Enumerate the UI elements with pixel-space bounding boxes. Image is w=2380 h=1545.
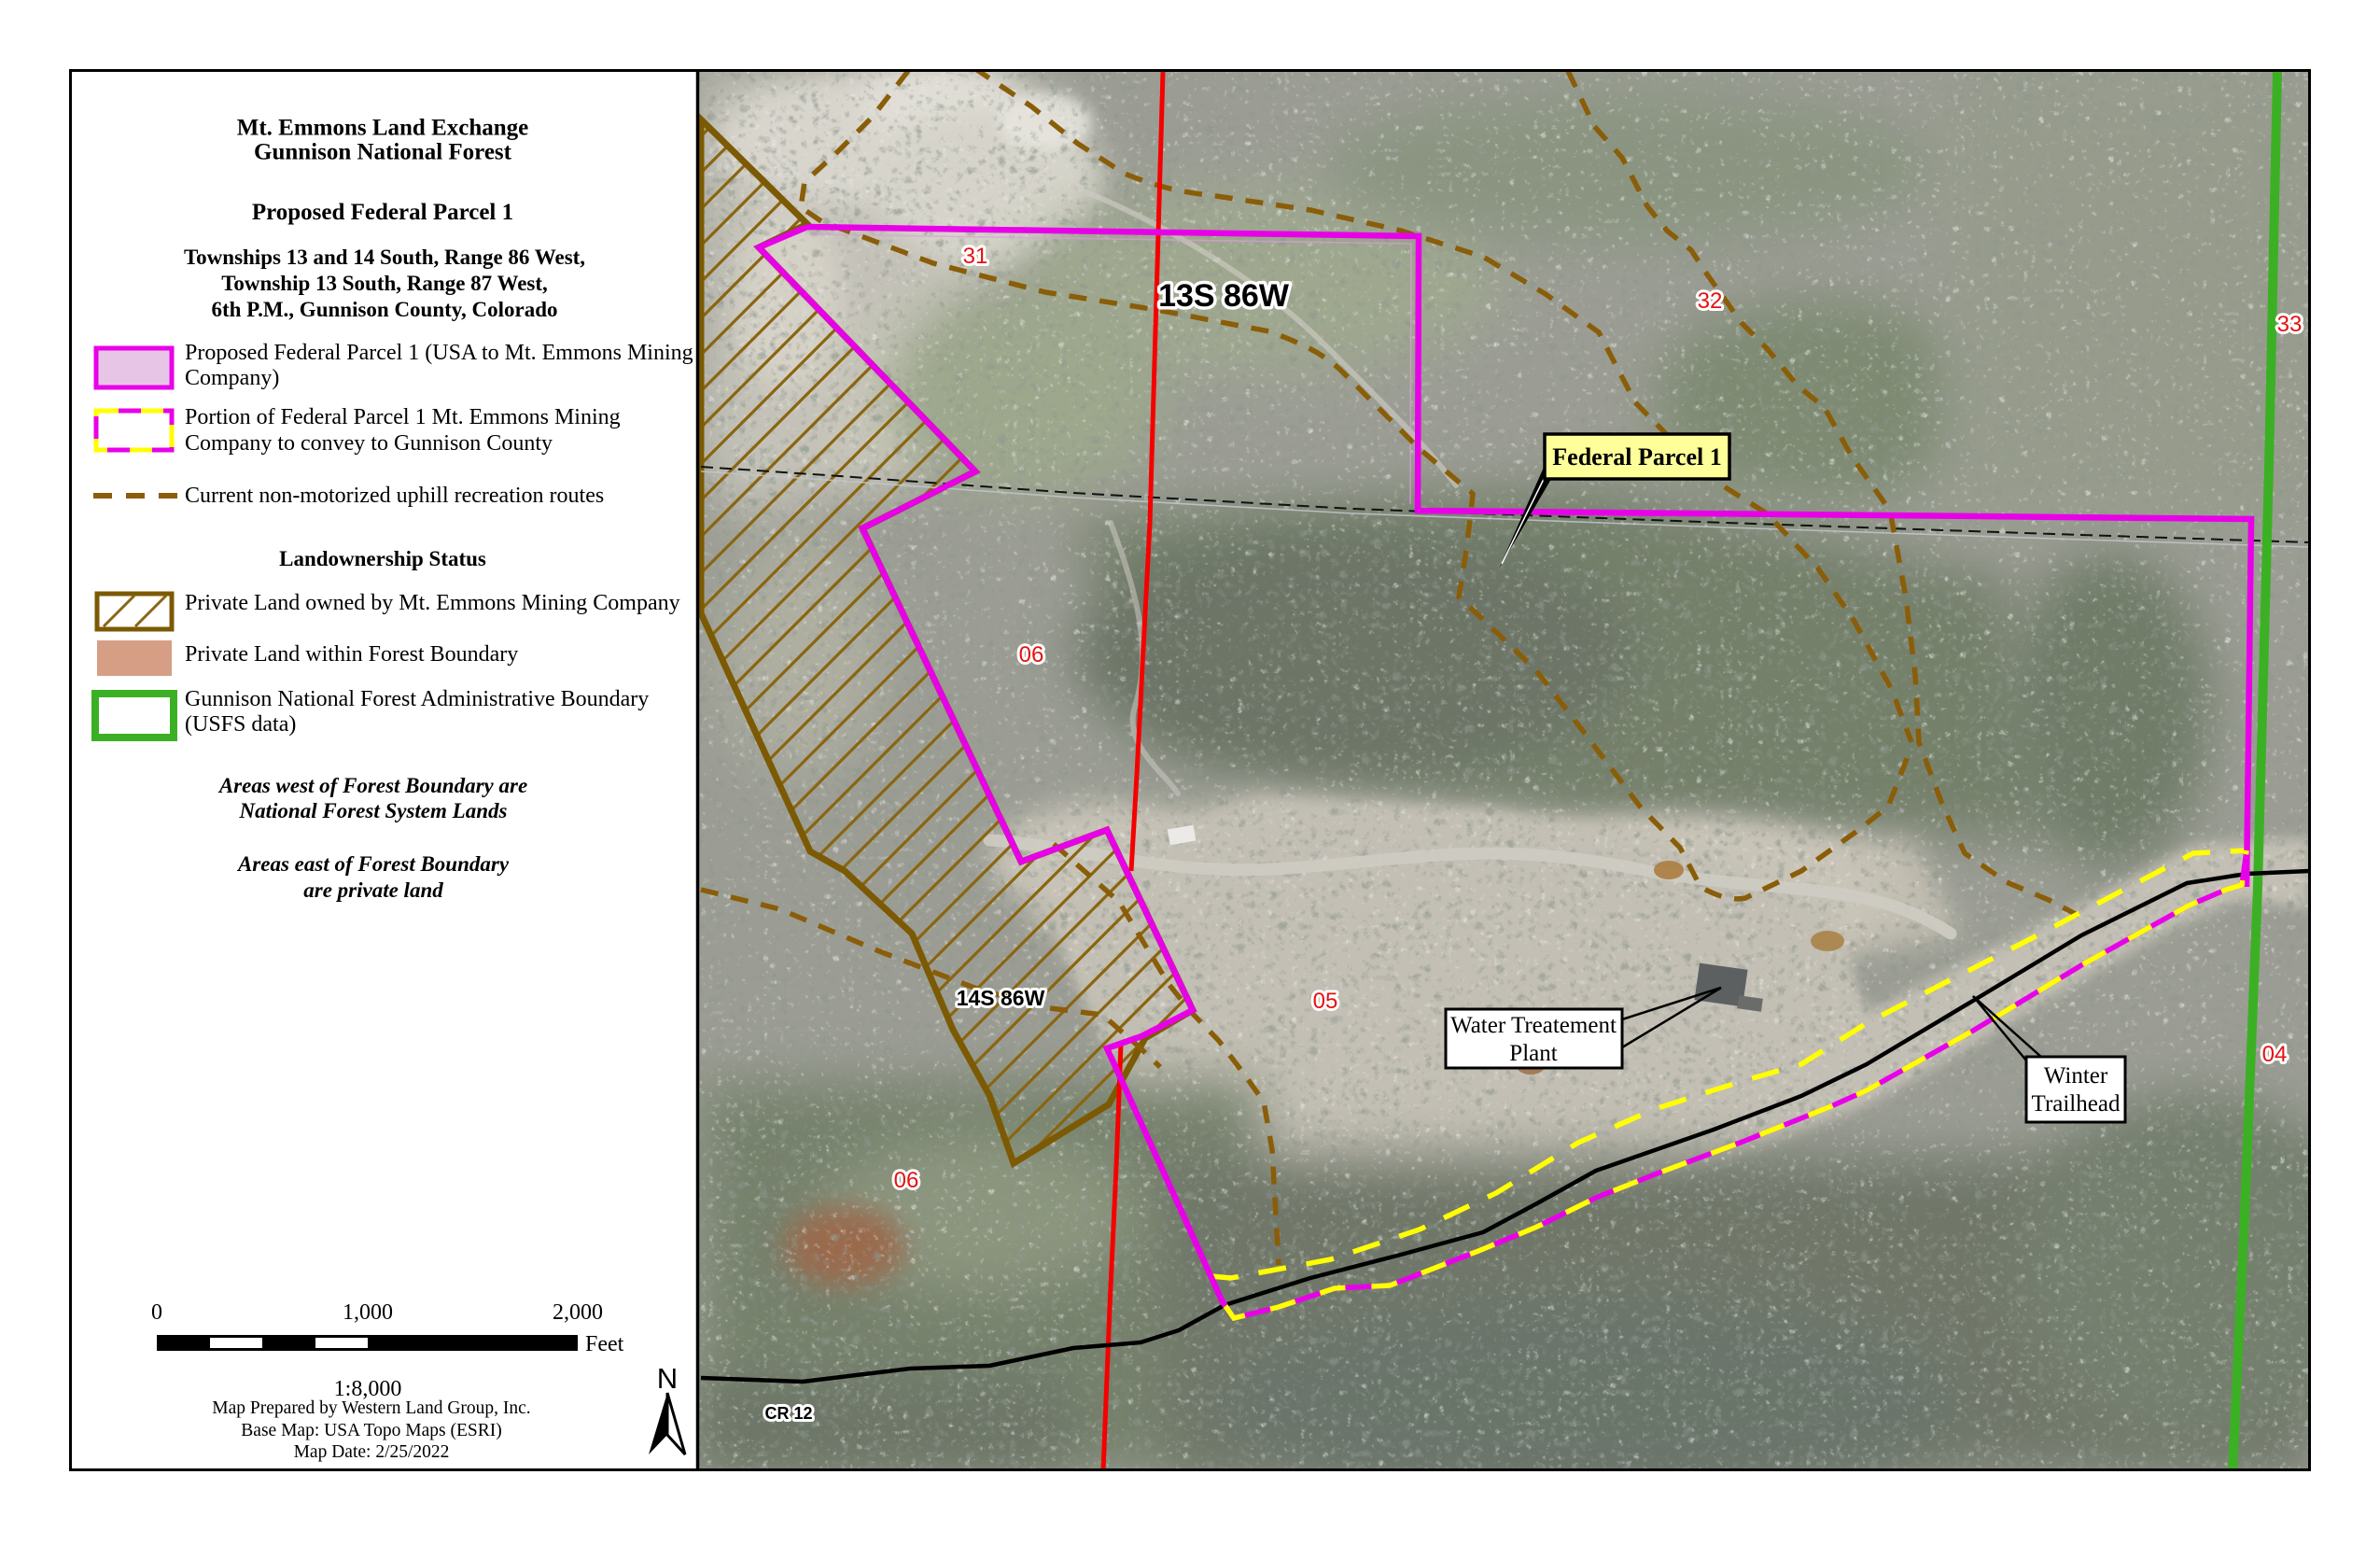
svg-text:31: 31 [963, 244, 988, 269]
svg-text:1,000: 1,000 [343, 1300, 393, 1325]
svg-text:04: 04 [2262, 1042, 2288, 1067]
svg-text:2,000: 2,000 [553, 1300, 603, 1325]
svg-text:(USFS data): (USFS data) [185, 712, 296, 737]
svg-text:0: 0 [151, 1300, 162, 1325]
svg-text:14S 86W: 14S 86W [957, 986, 1045, 1010]
svg-text:Portion of Federal Parcel 1 Mt: Portion of Federal Parcel 1 Mt. Emmons M… [185, 405, 621, 429]
svg-text:Plant: Plant [1509, 1041, 1557, 1066]
svg-text:Gunnison National Forest Admin: Gunnison National Forest Administrative … [185, 687, 649, 711]
svg-text:06: 06 [1019, 642, 1044, 667]
svg-text:Map Date: 2/25/2022: Map Date: 2/25/2022 [294, 1442, 450, 1462]
svg-text:Private Land within Forest Bou: Private Land within Forest Boundary [185, 642, 518, 667]
svg-text:Areas east of Forest Boundary: Areas east of Forest Boundary [236, 852, 510, 876]
svg-text:CR 12: CR 12 [764, 1404, 812, 1423]
svg-text:are private land: are private land [303, 878, 443, 902]
svg-text:Base Map: USA Topo Maps (ESRI): Base Map: USA Topo Maps (ESRI) [241, 1421, 501, 1440]
svg-text:Areas west of Forest Boundary: Areas west of Forest Boundary are [217, 774, 527, 797]
svg-text:Company): Company) [185, 366, 279, 390]
svg-text:Proposed Federal Parcel 1 (USA: Proposed Federal Parcel 1 (USA to Mt. Em… [185, 341, 693, 365]
svg-text:Proposed Federal Parcel 1: Proposed Federal Parcel 1 [252, 200, 513, 225]
svg-text:13S 86W: 13S 86W [1158, 278, 1290, 314]
svg-text:Federal Parcel 1: Federal Parcel 1 [1552, 443, 1721, 471]
svg-text:Water Treatement: Water Treatement [1450, 1013, 1617, 1038]
svg-text:Townships 13 and 14 South, Ran: Townships 13 and 14 South, Range 86 West… [184, 246, 585, 269]
svg-text:Winter: Winter [2044, 1063, 2108, 1089]
svg-text:Current non-motorized uphill r: Current non-motorized uphill recreation … [185, 484, 604, 508]
svg-text:6th P.M., Gunnison County, Col: 6th P.M., Gunnison County, Colorado [211, 298, 557, 321]
svg-text:Map Prepared by Western Land G: Map Prepared by Western Land Group, Inc. [212, 1398, 530, 1418]
svg-text:33: 33 [2277, 312, 2303, 337]
svg-text:Trailhead: Trailhead [2032, 1091, 2121, 1117]
svg-text:Landownership Status: Landownership Status [279, 547, 486, 570]
svg-text:06: 06 [894, 1168, 919, 1193]
svg-text:Gunnison National Forest: Gunnison National Forest [254, 140, 512, 165]
svg-text:Private Land owned by Mt. Emmo: Private Land owned by Mt. Emmons Mining … [185, 591, 680, 615]
svg-text:Company to convey to Gunnison: Company to convey to Gunnison County [185, 431, 553, 456]
svg-text:32: 32 [1698, 288, 1723, 314]
svg-text:05: 05 [1313, 989, 1338, 1014]
svg-text:Township 13 South, Range 87 We: Township 13 South, Range 87 West, [221, 272, 548, 295]
svg-text:National Forest System Lands: National Forest System Lands [239, 799, 508, 822]
svg-text:N: N [657, 1362, 678, 1395]
svg-text:Feet: Feet [585, 1332, 624, 1356]
svg-text:Mt. Emmons Land Exchange: Mt. Emmons Land Exchange [237, 116, 529, 141]
